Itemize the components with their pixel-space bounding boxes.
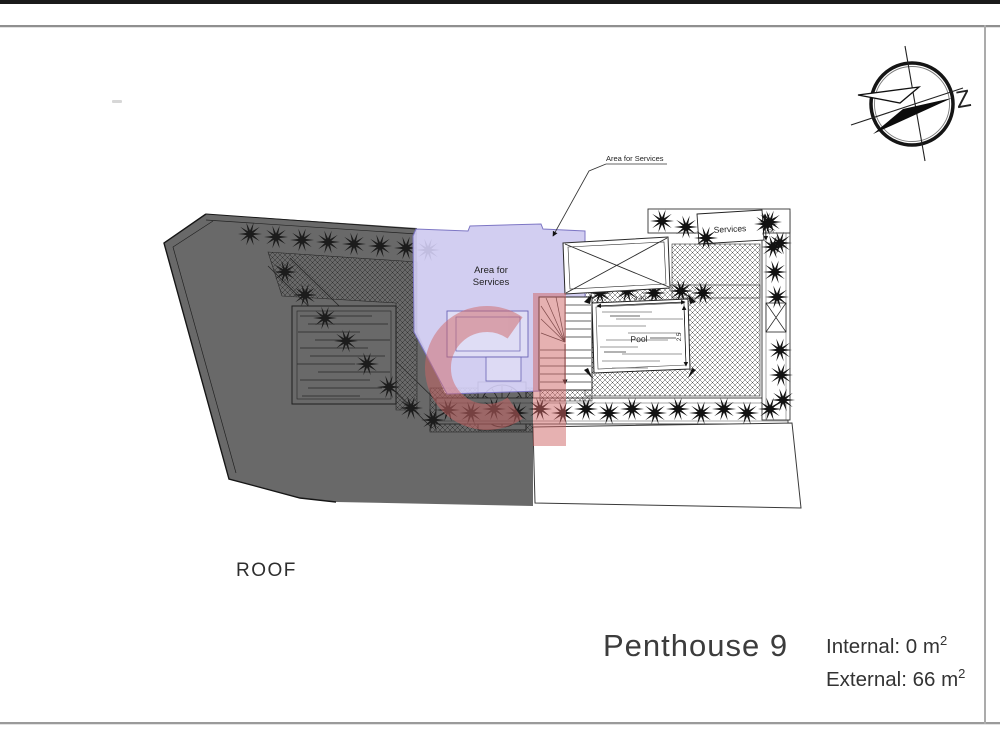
terrace bbox=[533, 423, 801, 508]
external-area-sup: 2 bbox=[958, 666, 965, 681]
pool-label: Pool bbox=[630, 334, 647, 345]
external-area-text: External: 66 m bbox=[826, 668, 958, 691]
drawing-sheet: Services 0.77 bbox=[0, 0, 1000, 750]
internal-area-text: Internal: 0 m bbox=[826, 635, 940, 658]
area-for-services-callout: Area for Services bbox=[606, 154, 664, 163]
internal-area-sup: 2 bbox=[940, 633, 947, 648]
external-area-label: External: 66 m2 bbox=[826, 666, 965, 692]
services-room-label: Services bbox=[713, 223, 746, 235]
area-for-services-label-line2: Services bbox=[473, 277, 510, 288]
pool-height-dimension: 2.5 bbox=[677, 332, 683, 341]
pool-width-dimension: 4.40 bbox=[634, 296, 647, 302]
internal-area-label: Internal: 0 m2 bbox=[826, 633, 965, 659]
unit-name: Penthouse 9 bbox=[603, 628, 788, 664]
skylight-shaft bbox=[563, 237, 670, 294]
pool: Pool 4.40 2.5 bbox=[584, 294, 696, 378]
area-summary: Internal: 0 m2 External: 66 m2 bbox=[826, 633, 965, 699]
north-label: Z bbox=[954, 85, 973, 114]
north-arrow-icon: Z bbox=[851, 46, 973, 161]
floor-plan: Services 0.77 bbox=[164, 154, 801, 508]
shaft-box bbox=[766, 303, 786, 332]
area-for-services-label-line1: Area for bbox=[474, 265, 508, 276]
floor-label: ROOF bbox=[236, 560, 297, 582]
